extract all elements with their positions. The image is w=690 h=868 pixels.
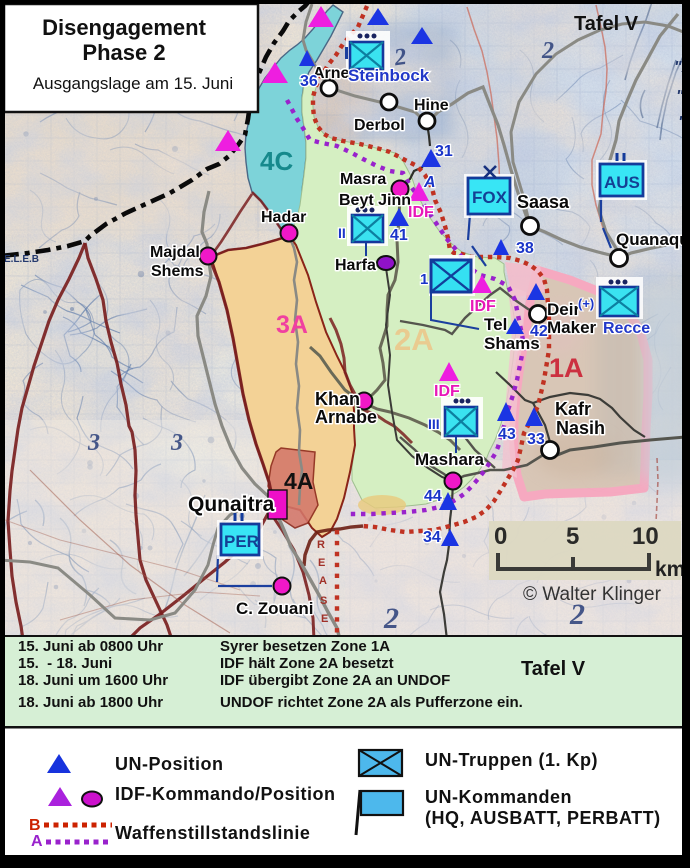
- svg-text:C. Zouani: C. Zouani: [236, 599, 313, 618]
- svg-text:1A: 1A: [549, 353, 584, 383]
- svg-text:AUS: AUS: [604, 173, 640, 192]
- svg-text:IDF-Kommando/Position: IDF-Kommando/Position: [115, 784, 336, 804]
- svg-text:Masra: Masra: [340, 171, 386, 188]
- svg-text:42: 42: [530, 323, 548, 340]
- svg-text:© Walter Klinger: © Walter Klinger: [523, 584, 662, 605]
- svg-text:Syrer besetzen Zone 1A: Syrer besetzen Zone 1A: [220, 638, 390, 655]
- svg-text:5: 5: [566, 523, 579, 550]
- svg-text:Beyt Jinn: Beyt Jinn: [339, 192, 411, 209]
- svg-text:41: 41: [390, 227, 408, 244]
- svg-text:FOX: FOX: [472, 188, 508, 207]
- svg-text:Mashara: Mashara: [415, 450, 485, 469]
- svg-text:Nasih: Nasih: [556, 418, 605, 438]
- svg-text:1: 1: [420, 271, 428, 288]
- svg-text:0: 0: [494, 523, 507, 550]
- svg-text:UN-Position: UN-Position: [115, 754, 224, 774]
- svg-text:3: 3: [87, 430, 100, 456]
- svg-text:2A: 2A: [394, 322, 434, 357]
- svg-text:UN-Truppen (1. Kp): UN-Truppen (1. Kp): [425, 750, 598, 770]
- svg-text:Disengagement: Disengagement: [42, 15, 206, 40]
- svg-text:3A: 3A: [276, 311, 308, 339]
- svg-text:4C: 4C: [260, 146, 293, 176]
- svg-text:II: II: [338, 225, 346, 241]
- svg-text:Qunaitra: Qunaitra: [188, 493, 275, 516]
- svg-text:10: 10: [632, 523, 659, 550]
- svg-text:km: km: [655, 558, 685, 581]
- svg-text:A: A: [319, 575, 327, 587]
- svg-text:31: 31: [435, 143, 453, 160]
- svg-text:Arnabe: Arnabe: [315, 407, 377, 427]
- svg-text:Tel: Tel: [484, 315, 507, 334]
- svg-text:UNDOF richtet Zone 2A als Puff: UNDOF richtet Zone 2A als Pufferzone ein…: [220, 694, 523, 711]
- svg-text:Hadar: Hadar: [261, 209, 306, 226]
- svg-text:Recce: Recce: [603, 320, 650, 337]
- svg-text:3: 3: [170, 430, 183, 456]
- svg-text:Waffenstillstandslinie: Waffenstillstandslinie: [115, 823, 310, 843]
- svg-text:E: E: [321, 613, 328, 625]
- svg-text:A: A: [31, 833, 43, 850]
- svg-text:Tafel V: Tafel V: [521, 658, 586, 680]
- svg-text:15. Juni ab 0800 Uhr: 15. Juni ab 0800 Uhr: [18, 638, 163, 655]
- svg-text:UN-Kommanden: UN-Kommanden: [425, 787, 572, 807]
- svg-text:Deir: Deir: [547, 300, 580, 319]
- svg-text:III: III: [428, 416, 440, 432]
- svg-text:36: 36: [300, 73, 318, 90]
- svg-text:18. Juni ab 1800 Uhr: 18. Juni ab 1800 Uhr: [18, 694, 163, 711]
- svg-text:Kafr: Kafr: [555, 399, 591, 419]
- svg-text:PER: PER: [224, 532, 259, 551]
- svg-text:Shems: Shems: [151, 263, 204, 280]
- svg-text:(+): (+): [578, 296, 594, 311]
- svg-text:Hine: Hine: [414, 97, 449, 114]
- svg-text:Ausgangslage am 15. Juni: Ausgangslage am 15. Juni: [33, 74, 233, 93]
- svg-text:B: B: [29, 817, 41, 834]
- svg-text:(HQ, AUSBATT, PERBATT): (HQ, AUSBATT, PERBATT): [425, 808, 661, 828]
- svg-text:44: 44: [424, 488, 442, 505]
- svg-text:Derbol: Derbol: [354, 117, 405, 134]
- svg-text:Phase 2: Phase 2: [82, 40, 165, 65]
- svg-text:43: 43: [498, 426, 516, 443]
- svg-text:2: 2: [383, 602, 399, 635]
- svg-text:IDF: IDF: [408, 204, 434, 221]
- svg-text:Tafel V: Tafel V: [574, 13, 639, 35]
- svg-text:15. - 18. Juni: 15. - 18. Juni: [18, 655, 112, 672]
- svg-text:Maker: Maker: [547, 318, 597, 337]
- svg-text:IDF: IDF: [470, 298, 496, 315]
- svg-text:E: E: [318, 557, 325, 569]
- svg-text:R: R: [317, 539, 325, 551]
- svg-text:Majdal: Majdal: [150, 244, 200, 261]
- svg-text:S: S: [320, 595, 327, 607]
- svg-text:IDF übergibt Zone 2A an UNDOF: IDF übergibt Zone 2A an UNDOF: [220, 672, 450, 689]
- svg-text:Saasa: Saasa: [517, 192, 570, 212]
- svg-text:E.L.E.B: E.L.E.B: [4, 254, 39, 265]
- svg-text:2: 2: [541, 38, 554, 64]
- svg-text:Khan: Khan: [315, 389, 360, 409]
- svg-text:Steinbock: Steinbock: [348, 66, 430, 85]
- svg-text:Harfa: Harfa: [335, 257, 376, 274]
- svg-text:33: 33: [527, 431, 545, 448]
- svg-text:IDF: IDF: [434, 383, 460, 400]
- svg-text:Quanaque: Quanaque: [616, 230, 690, 249]
- svg-text:18. Juni um 1600 Uhr: 18. Juni um 1600 Uhr: [18, 672, 168, 689]
- svg-text:4A: 4A: [284, 468, 313, 494]
- svg-text:A: A: [423, 174, 436, 191]
- svg-text:Arne: Arne: [313, 65, 350, 82]
- svg-text:38: 38: [516, 240, 534, 257]
- svg-text:34: 34: [423, 529, 441, 546]
- svg-text:IDF hält Zone 2A besetzt: IDF hält Zone 2A besetzt: [220, 655, 394, 672]
